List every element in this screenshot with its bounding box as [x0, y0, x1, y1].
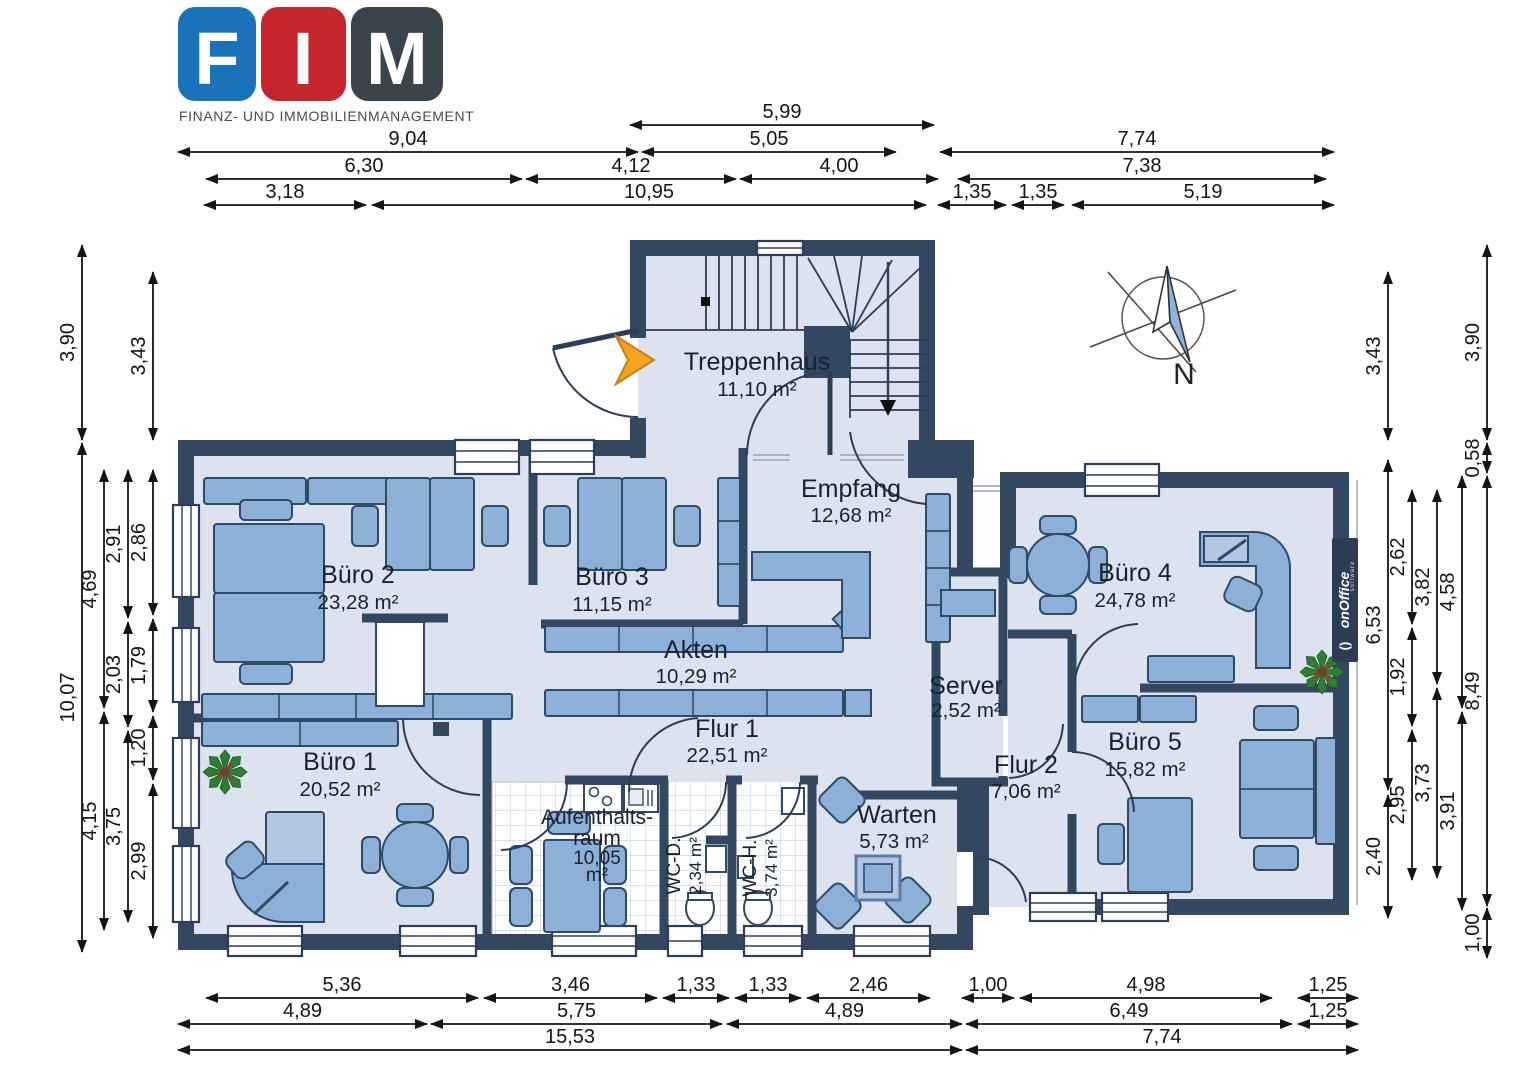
dimension-label: 2,40	[1363, 837, 1385, 876]
dimension-label: 5,36	[323, 974, 362, 996]
dimension-label: 2,95	[1387, 786, 1409, 825]
room-label-flur1: Flur 1	[695, 715, 759, 743]
dimension: 6,53	[1363, 460, 1388, 790]
dimension: 8,49	[1462, 476, 1487, 906]
dimension: 3,90	[57, 245, 82, 440]
room-area-akten: 10,29 m²	[656, 665, 737, 688]
dimension: 3,91	[1437, 712, 1462, 910]
svg-text:3,74 m²: 3,74 m²	[762, 839, 781, 897]
dimension-label: 3,18	[266, 181, 305, 203]
dimension-label: 4,69	[79, 570, 101, 609]
logo-letter-f: F	[194, 17, 239, 100]
dimension-label: 4,58	[1437, 573, 1459, 612]
dimension-label: 3,90	[57, 323, 79, 362]
dimension: 3,43	[128, 272, 153, 440]
dimension-label: 1,79	[128, 646, 150, 685]
dimension: 2,99	[128, 784, 153, 938]
room-label-buero5: Büro 5	[1108, 728, 1182, 756]
window	[228, 926, 302, 956]
dimension-label: 0,58	[1462, 439, 1484, 478]
dimension-label: 3,46	[551, 974, 590, 996]
dimension: 3,18	[204, 181, 366, 205]
dimension-label: 10,95	[624, 181, 674, 203]
dimension: 1,00	[1462, 908, 1487, 958]
dimension-label: 4,98	[1127, 974, 1166, 996]
window	[173, 738, 199, 828]
dimension-label: 9,04	[389, 128, 428, 150]
room-label-warten: Warten	[857, 801, 937, 829]
room-area-buero2: 23,28 m²	[318, 591, 399, 614]
floor-plan-page: Treppenhaus 11,10 m² Empfang 12,68 m² Bü…	[0, 0, 1528, 1080]
room-label-flur2: Flur 2	[994, 751, 1058, 779]
dimension: 4,98	[1020, 974, 1272, 998]
dimension-label: 15,53	[545, 1026, 595, 1048]
dimension: 3,82	[1412, 490, 1437, 684]
dimension: 5,75	[431, 1000, 722, 1024]
watermark-logo-icon: ()	[1337, 642, 1352, 651]
dimension: 2,91	[103, 470, 128, 618]
dimension: 6,30	[206, 155, 522, 179]
window	[854, 926, 930, 956]
dimension-label: 2,86	[128, 523, 150, 562]
dimension: 10,95	[372, 181, 926, 205]
dimension-label: 4,89	[825, 1000, 864, 1022]
dimension-label: 1,35	[1019, 181, 1058, 203]
dimension: 3,46	[484, 974, 657, 998]
dimension-label: 1,00	[969, 974, 1008, 996]
room-label-buero1: Büro 1	[303, 748, 377, 776]
room-label-buero4: Büro 4	[1098, 559, 1172, 587]
dimension: 3,73	[1412, 688, 1437, 878]
dimension-label: 3,75	[103, 807, 125, 846]
dimension-label: 10,07	[57, 672, 79, 722]
svg-text:m²: m²	[586, 865, 608, 886]
dimension-label: 7,74	[1143, 1026, 1182, 1048]
room-label-buero2: Büro 2	[321, 561, 395, 589]
dimension-label: 1,33	[749, 974, 788, 996]
room-label-akten: Akten	[664, 636, 728, 664]
dimension: 1,25	[1298, 1000, 1358, 1024]
watermark-sub: software	[1350, 561, 1356, 592]
dimension-label: 2,99	[128, 842, 150, 881]
dimension-label: 4,15	[79, 802, 101, 841]
dimension: 4,12	[526, 155, 736, 179]
dimension-label: 5,05	[750, 128, 789, 150]
dimension-label: 1,33	[677, 974, 716, 996]
server-rack	[941, 590, 995, 616]
dimension-label: 7,38	[1123, 155, 1162, 177]
dimension: 1,33	[663, 974, 729, 998]
dimension-label: 5,99	[763, 101, 802, 123]
dimension: 5,05	[642, 128, 896, 152]
dimension: 2,40	[1363, 795, 1388, 918]
room-label-buero3: Büro 3	[575, 563, 649, 591]
window	[1030, 893, 1096, 921]
svg-text:2,34 m²: 2,34 m²	[686, 837, 705, 895]
dimension: 7,38	[958, 155, 1326, 179]
dimension-label: 2,46	[849, 974, 888, 996]
plant-icon	[203, 750, 247, 794]
svg-text:raum: raum	[573, 827, 621, 850]
window	[455, 440, 519, 474]
dimension-label: 5,75	[557, 1000, 596, 1022]
dimension-label: 4,00	[820, 155, 859, 177]
dimension: 2,86	[128, 470, 153, 615]
window	[757, 241, 803, 255]
dimension: 2,62	[1387, 490, 1412, 624]
dimension: 2,46	[807, 974, 930, 998]
dimension-label: 6,30	[345, 155, 384, 177]
dimension: 10,07	[57, 443, 82, 952]
window	[668, 926, 702, 956]
dimension-label: 1,25	[1309, 1000, 1348, 1022]
window	[400, 926, 476, 956]
dimension-label: 1,92	[1387, 658, 1409, 697]
dimension-label: 2,62	[1387, 538, 1409, 577]
dimension: 4,89	[178, 1000, 427, 1024]
dimension-label: 4,89	[283, 1000, 322, 1022]
room-area-warten: 5,73 m²	[859, 830, 929, 853]
dimension: 5,19	[1072, 181, 1334, 205]
dimension-label: 3,91	[1437, 792, 1459, 831]
dimension: 2,95	[1387, 730, 1412, 880]
room-area-server: 2,52 m²	[931, 699, 1001, 722]
room-area-empfang: 12,68 m²	[811, 504, 892, 527]
dimension: 3,43	[1363, 272, 1388, 440]
onoffice-watermark: onOffice software ()	[1332, 538, 1358, 662]
dimension-label: 2,91	[103, 525, 125, 564]
dimension-label: 5,19	[1184, 181, 1223, 203]
dimension-label: 2,03	[103, 655, 125, 694]
dimension: 4,89	[727, 1000, 962, 1024]
room-area-buero4: 24,78 m²	[1095, 589, 1176, 612]
dimension: 2,03	[103, 622, 128, 727]
window	[1085, 464, 1159, 496]
window	[173, 846, 199, 922]
dimension-label: 3,90	[1462, 323, 1484, 362]
dimension-label: 3,43	[128, 337, 150, 376]
dimension: 3,75	[103, 731, 128, 922]
dimension: 15,53	[178, 1026, 962, 1050]
dimension: 1,33	[735, 974, 801, 998]
dimension: 0,58	[1462, 439, 1487, 478]
dimension: 1,35	[1012, 181, 1064, 205]
room-area-flur2: 7,06 m²	[991, 780, 1061, 803]
window	[1102, 893, 1168, 921]
dimension: 7,74	[966, 1026, 1358, 1050]
dimension-label: 1,20	[128, 729, 150, 768]
room-area-buero3: 11,15 m²	[572, 593, 652, 616]
dimension: 1,92	[1387, 628, 1412, 726]
room-label-wc-damen: WC-D. 2,34 m²	[664, 837, 705, 895]
dimension-label: 3,82	[1412, 568, 1434, 607]
compass-north-label: N	[1173, 358, 1195, 391]
dimension: 1,20	[128, 716, 153, 780]
logo-letter-i: I	[293, 17, 314, 100]
dimension: 1,00	[962, 974, 1014, 998]
svg-text:WC-D.: WC-D.	[664, 838, 685, 895]
window	[744, 926, 802, 956]
dimension-label: 8,49	[1462, 672, 1484, 711]
dimension: 7,74	[940, 128, 1334, 152]
room-label-empfang: Empfang	[801, 475, 901, 503]
dimension-label: 6,49	[1110, 1000, 1149, 1022]
window	[530, 440, 594, 474]
dimension-label: 1,00	[1462, 914, 1484, 953]
room-label-treppenhaus: Treppenhaus	[684, 348, 830, 376]
dimension: 9,04	[178, 128, 638, 152]
dimension-label: 3,73	[1412, 764, 1434, 803]
dimension-label: 4,12	[612, 155, 651, 177]
dimension: 1,35	[938, 181, 1006, 205]
dimension-label: 7,74	[1118, 128, 1157, 150]
room-area-flur1: 22,51 m²	[687, 744, 768, 767]
dimension: 1,25	[1298, 974, 1358, 998]
floor-plan-canvas: Treppenhaus 11,10 m² Empfang 12,68 m² Bü…	[0, 0, 1528, 1080]
room-area-treppenhaus: 11,10 m²	[717, 378, 797, 401]
svg-text:WC-H.: WC-H.	[740, 840, 761, 897]
window	[173, 628, 199, 702]
fim-logo: F I M FINANZ- UND IMMOBILIENMANAGEMENT	[178, 7, 474, 124]
room-label-server: Server	[929, 672, 1003, 700]
dimension: 5,99	[630, 101, 934, 125]
window	[173, 505, 199, 597]
dimension-label: 6,53	[1363, 606, 1385, 645]
room-label-wc-herren: WC-H. 3,74 m²	[740, 839, 781, 897]
dimension: 5,36	[206, 974, 478, 998]
room-area-buero1: 20,52 m²	[300, 778, 381, 801]
dimension-label: 1,25	[1309, 974, 1348, 996]
dimension-label: 3,43	[1363, 337, 1385, 376]
svg-text:Aufenthalts-: Aufenthalts-	[541, 806, 653, 829]
room-area-buero5: 15,82 m²	[1105, 758, 1186, 781]
dimension: 6,49	[966, 1000, 1292, 1024]
dimension: 4,00	[740, 155, 938, 179]
dimension: 4,58	[1437, 476, 1462, 708]
compass-rose: N	[1090, 266, 1236, 391]
dimension: 3,90	[1462, 245, 1487, 440]
dimension-label: 1,35	[953, 181, 992, 203]
logo-subtitle: FINANZ- UND IMMOBILIENMANAGEMENT	[179, 108, 474, 124]
dimension: 1,79	[128, 619, 153, 712]
logo-letter-m: M	[366, 17, 428, 100]
